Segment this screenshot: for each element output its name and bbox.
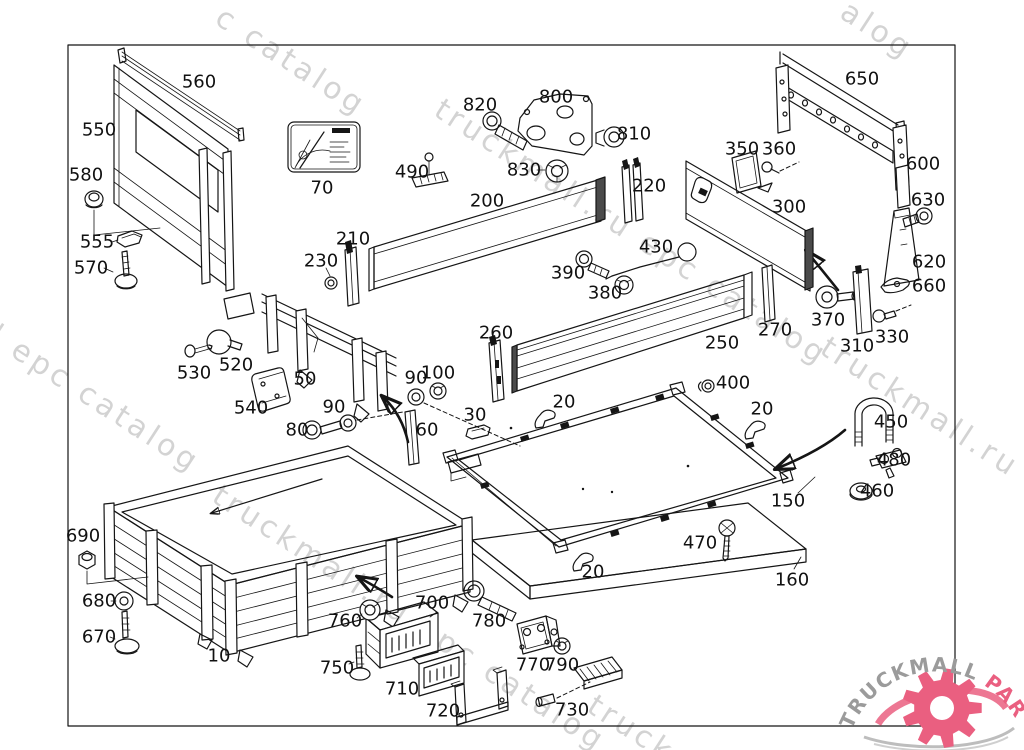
part-80-bolt-drawing	[303, 421, 342, 439]
part-460-cap-drawing	[850, 483, 872, 500]
part-620-stake-drawing	[884, 208, 919, 286]
part-260-post-drawing	[489, 335, 504, 402]
diagram-line-art	[0, 0, 1024, 750]
part-90b-washer-drawing	[340, 415, 356, 431]
part-630-bolt-drawing	[903, 208, 932, 227]
part-760-nut-drawing	[357, 600, 380, 620]
part-520-knob-drawing	[207, 330, 242, 354]
part-600-bracket-drawing	[893, 125, 910, 208]
part-270-post-drawing	[762, 265, 775, 322]
part-450-ubolt-drawing	[855, 398, 893, 446]
part-555-clamp-drawing	[112, 231, 142, 247]
part-390-bolt-drawing	[576, 251, 609, 278]
part-800-bracket-drawing	[518, 94, 592, 155]
part-810-buffer-drawing	[596, 127, 624, 147]
part-360-bolt-drawing	[762, 162, 799, 173]
part-490-strip-drawing	[412, 153, 448, 187]
part-20-clip-c-drawing	[573, 553, 593, 571]
part-370-eyebolt-drawing	[808, 253, 858, 308]
part-200-side-board-drawing	[369, 177, 605, 291]
part-480-clamp-drawing	[870, 449, 906, 479]
part-470-screw-drawing	[719, 520, 735, 561]
part-70-label-card-drawing	[288, 122, 360, 172]
part-380-nut-drawing	[615, 276, 633, 294]
part-20-clip-b-drawing	[745, 421, 765, 439]
part-730-pin-drawing	[536, 657, 622, 707]
part-220-posts-drawing	[622, 157, 643, 223]
part-300-panel-drawing	[686, 161, 813, 291]
part-90-washer-drawing	[408, 389, 424, 405]
part-750-bolt-drawing	[349, 645, 370, 680]
part-540-plate-drawing	[252, 368, 290, 411]
part-50-frame-drawing	[224, 293, 396, 422]
part-150-platform-frame-drawing	[443, 382, 815, 553]
part-330-bolt-drawing	[873, 305, 911, 322]
part-100-nut-drawing	[430, 383, 446, 399]
part-210-post-drawing	[345, 240, 359, 306]
part-770-hinge-drawing	[517, 616, 560, 654]
part-680-washer-drawing	[111, 592, 133, 610]
pointer-arrow-150	[778, 430, 845, 468]
part-30-clip-drawing	[466, 425, 490, 439]
part-230-grommet-drawing	[325, 268, 337, 289]
part-160-floor-board-drawing	[472, 488, 806, 599]
part-830-nut-drawing	[537, 160, 568, 182]
part-650-rail-drawing	[776, 52, 905, 163]
part-570-bolt-drawing	[104, 251, 137, 289]
part-400-grommet-drawing	[699, 380, 715, 392]
exploded-parts-diagram-page: c catalogalogtruckmall.ru epc catalogtru…	[0, 0, 1024, 750]
part-670-bolt-drawing	[110, 611, 139, 654]
part-560-headboard-drawing	[114, 48, 244, 291]
part-430-hook-drawing	[606, 243, 696, 279]
part-310-post-drawing	[853, 265, 872, 334]
